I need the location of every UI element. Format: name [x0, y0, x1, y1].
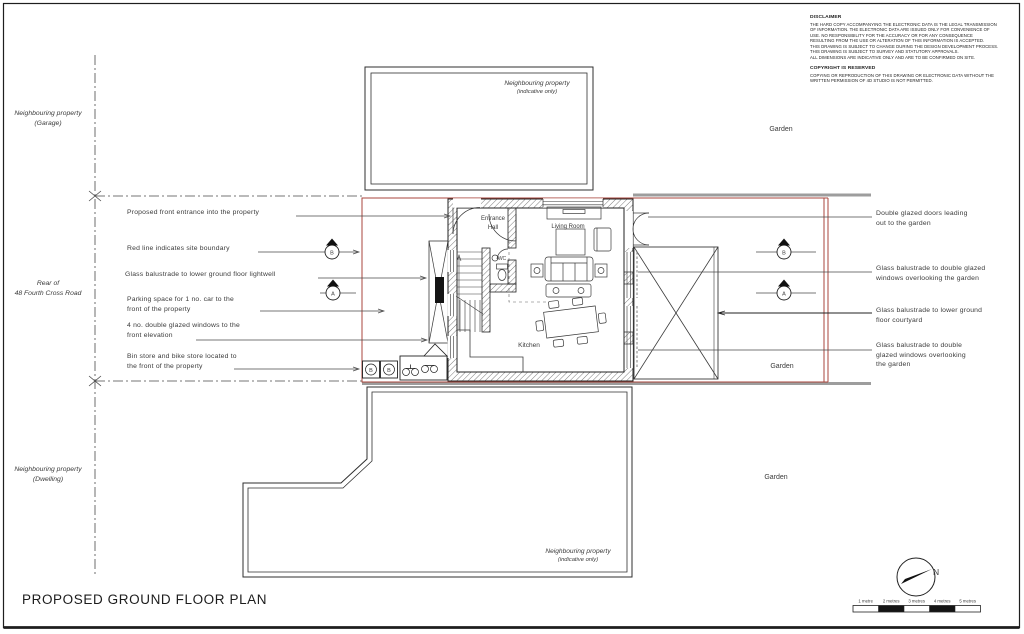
drawing-title: PROPOSED GROUND FLOOR PLAN: [22, 592, 267, 607]
scale-label-2: 2 metres: [883, 599, 900, 604]
disclaimer-block: DISCLAIMER THE HARD COPY ACCOMPANYING TH…: [810, 15, 1010, 84]
label-line: 48 Fourth Cross Road: [0, 289, 103, 299]
annotation-front-entrance: Proposed front entrance into the propert…: [127, 208, 259, 218]
label-neighbour-bottom: Neighbouring property (indicative only): [508, 547, 648, 565]
courtyard: [634, 247, 718, 379]
marker-letter-b-right: B: [782, 251, 786, 257]
dining-table: [533, 295, 608, 349]
copyright-line: WRITTEN PERMISSION OF 4D STUDIO IS NOT P…: [810, 78, 1010, 84]
scale-label-5: 5 metres: [959, 599, 976, 604]
room-label-wc: WC: [498, 256, 507, 262]
bin-store: [363, 361, 398, 378]
label-line: Neighbouring property: [0, 109, 103, 119]
kitchen-counter: [457, 330, 523, 372]
annotation-garden-doors: Double glazed doors leading out to the g…: [876, 209, 968, 228]
leader-lines-right: [638, 217, 872, 350]
section-marker-b-right: [756, 239, 816, 260]
annotation-front-windows: 4 no. double glazed windows to the front…: [127, 321, 240, 340]
garden-label-bottom: Garden: [764, 474, 787, 481]
room-label-kitchen: Kitchen: [518, 342, 540, 349]
label-line: Neighbouring property: [467, 79, 607, 88]
lightwell: [429, 241, 448, 343]
label-line: Rear of: [0, 279, 103, 289]
marker-letter-a-left: A: [331, 292, 335, 298]
marker-letter-b-left: B: [330, 251, 334, 257]
marker-letter-a-right: A: [782, 292, 786, 298]
disclaimer-line: OF INFORMATION. THE ELECTRONIC DATA ARE …: [810, 27, 1010, 33]
label-line: Neighbouring property: [508, 547, 648, 556]
label-neighbour-dwelling: Neighbouring property (Dwelling): [0, 465, 103, 485]
scale-label-1: 1 metre: [858, 599, 873, 604]
room-label-entrance-hall-2: Hall: [488, 225, 498, 231]
label-line: (Garage): [0, 119, 103, 129]
disclaimer-heading: DISCLAIMER: [810, 15, 1010, 20]
scale-label-3: 3 metres: [908, 599, 925, 604]
label-line: (Dwelling): [0, 475, 103, 485]
north-label: N: [933, 567, 939, 577]
annotation-bin-bike-store: Bin store and bike store located to the …: [127, 352, 237, 371]
section-marker-a-right: [756, 280, 816, 301]
annotation-parking-space: Parking space for 1 no. car to the front…: [127, 295, 234, 314]
label-line: Neighbouring property: [0, 465, 103, 475]
external-walls: [448, 199, 633, 381]
annotation-garden-windows-balustrade-2: Glass balustrade to double glazed window…: [876, 341, 966, 370]
bike-store: [400, 344, 447, 380]
label-neighbour-top: Neighbouring property (indicative only): [467, 79, 607, 97]
annotation-garden-windows-balustrade: Glass balustrade to double glazed window…: [876, 264, 985, 283]
room-label-living-room: Living Room: [551, 224, 584, 230]
label-rear-of-road: Rear of 48 Fourth Cross Road: [0, 279, 103, 299]
scale-bar: [853, 606, 981, 613]
annotation-lightwell-balustrade: Glass balustrade to lower ground floor l…: [125, 270, 276, 280]
garden-label-middle: Garden: [770, 363, 793, 370]
wall-openings: [448, 198, 649, 368]
room-label-entrance-hall: Entrance: [481, 216, 506, 222]
label-neighbour-garage: Neighbouring property (Garage): [0, 109, 103, 129]
garden-label-top: Garden: [769, 126, 792, 133]
annotation-courtyard-balustrade: Glass balustrade to lower ground floor c…: [876, 306, 982, 325]
wc-fixtures: [492, 249, 508, 281]
disclaimer-line: RESULTING FROM THE USE OR ALTERATION OF …: [810, 38, 1010, 44]
label-line: (indicative only): [508, 556, 648, 565]
leader-lines-left: [196, 214, 450, 371]
section-marker-a-left: [320, 280, 356, 301]
annotation-red-line-boundary: Red line indicates site boundary: [127, 244, 230, 254]
bin-letter-2: B: [387, 368, 391, 374]
scale-label-4: 4 metres: [934, 599, 951, 604]
sheet-frame: [4, 4, 1020, 628]
north-arrow: [897, 558, 935, 596]
living-room-furniture: [531, 207, 611, 297]
property-dashed-lines: [95, 55, 362, 575]
copyright-heading: COPYRIGHT IS RESERVED: [810, 66, 1010, 71]
staircase: [456, 252, 483, 332]
label-line: (indicative only): [467, 88, 607, 97]
drawing-sheet: Entrance Hall Living Room WC Kitchen Gar…: [0, 0, 1024, 634]
bin-letter-1: B: [369, 368, 373, 374]
section-markers: [320, 239, 816, 301]
